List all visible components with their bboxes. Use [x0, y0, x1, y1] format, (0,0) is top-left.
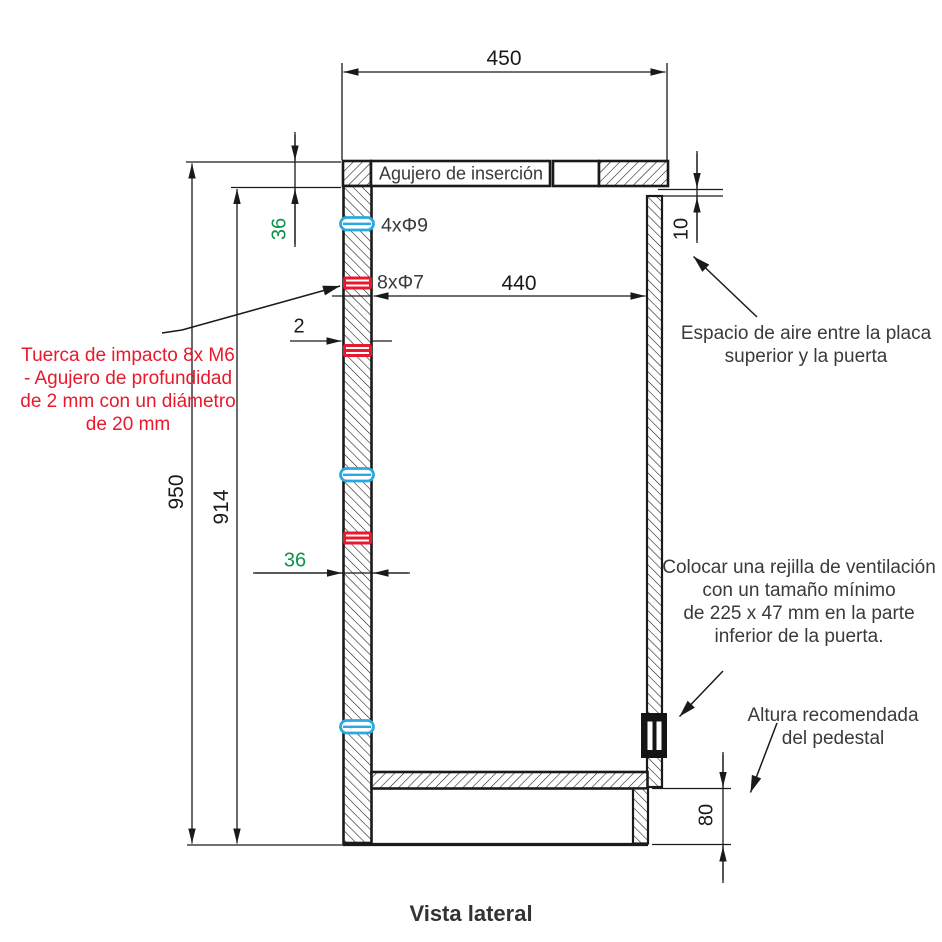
vent-note-line3: de 225 x 47 mm en la parte: [662, 602, 936, 625]
impact-nut-note-line4: de 20 mm: [20, 413, 235, 436]
technical-drawing: 450 440 950 914 36 36 2 10 80 Agujero de…: [0, 0, 942, 942]
dim-label-440: 440: [501, 272, 536, 296]
air-gap-note: Espacio de aire entre la placa superior …: [681, 322, 931, 368]
dim-label-36-wall: 36: [284, 550, 306, 573]
drawing-linework: [0, 0, 942, 942]
dim-914: [231, 188, 341, 844]
air-gap-note-line2: superior y la puerta: [681, 345, 931, 368]
vent-note-line1: Colocar una rejilla de ventilación: [662, 556, 936, 579]
dim-label-10: 10: [671, 218, 694, 240]
leader-air-gap: [694, 257, 758, 318]
door-panel: [647, 196, 662, 787]
holes-d7-label: 8xΦ7: [377, 272, 424, 295]
dim-label-950: 950: [165, 474, 189, 509]
impact-nut-note-line3: de 2 mm con un diámetro: [20, 390, 235, 413]
pedestal: [633, 789, 648, 844]
dim-label-36-top: 36: [269, 218, 292, 240]
drawing-title: Vista lateral: [409, 901, 532, 927]
bottom-shelf: [372, 772, 648, 789]
leader-vent: [680, 671, 724, 717]
impact-nut-note-line2: - Agujero de profundidad: [20, 367, 235, 390]
impact-nut-note-line1: Tuerca de impacto 8x M6: [20, 344, 235, 367]
dim-label-914: 914: [210, 489, 234, 524]
impact-nut-note: Tuerca de impacto 8x M6 - Agujero de pro…: [20, 344, 235, 436]
dim-80: [652, 752, 731, 883]
leader-impact-nut: [162, 286, 340, 333]
pedestal-note-line2: del pedestal: [747, 727, 918, 750]
pedestal-note-line1: Altura recomendada: [747, 704, 918, 727]
pedestal-note: Altura recomendada del pedestal: [747, 704, 918, 750]
vent-note: Colocar una rejilla de ventilación con u…: [662, 556, 936, 648]
dim-450: [342, 63, 667, 160]
ventilation-grille: [641, 713, 667, 758]
vent-note-line4: inferior de la puerta.: [662, 625, 936, 648]
vent-note-line2: con un tamaño mínimo: [662, 579, 936, 602]
dim-label-2: 2: [293, 316, 304, 339]
holes-d9-label: 4xΦ9: [381, 215, 428, 238]
air-gap-note-line1: Espacio de aire entre la placa: [681, 322, 931, 345]
dim-label-450: 450: [486, 47, 521, 71]
insertion-hole-label: Agujero de inserción: [379, 164, 543, 185]
dim-label-80: 80: [696, 804, 719, 826]
